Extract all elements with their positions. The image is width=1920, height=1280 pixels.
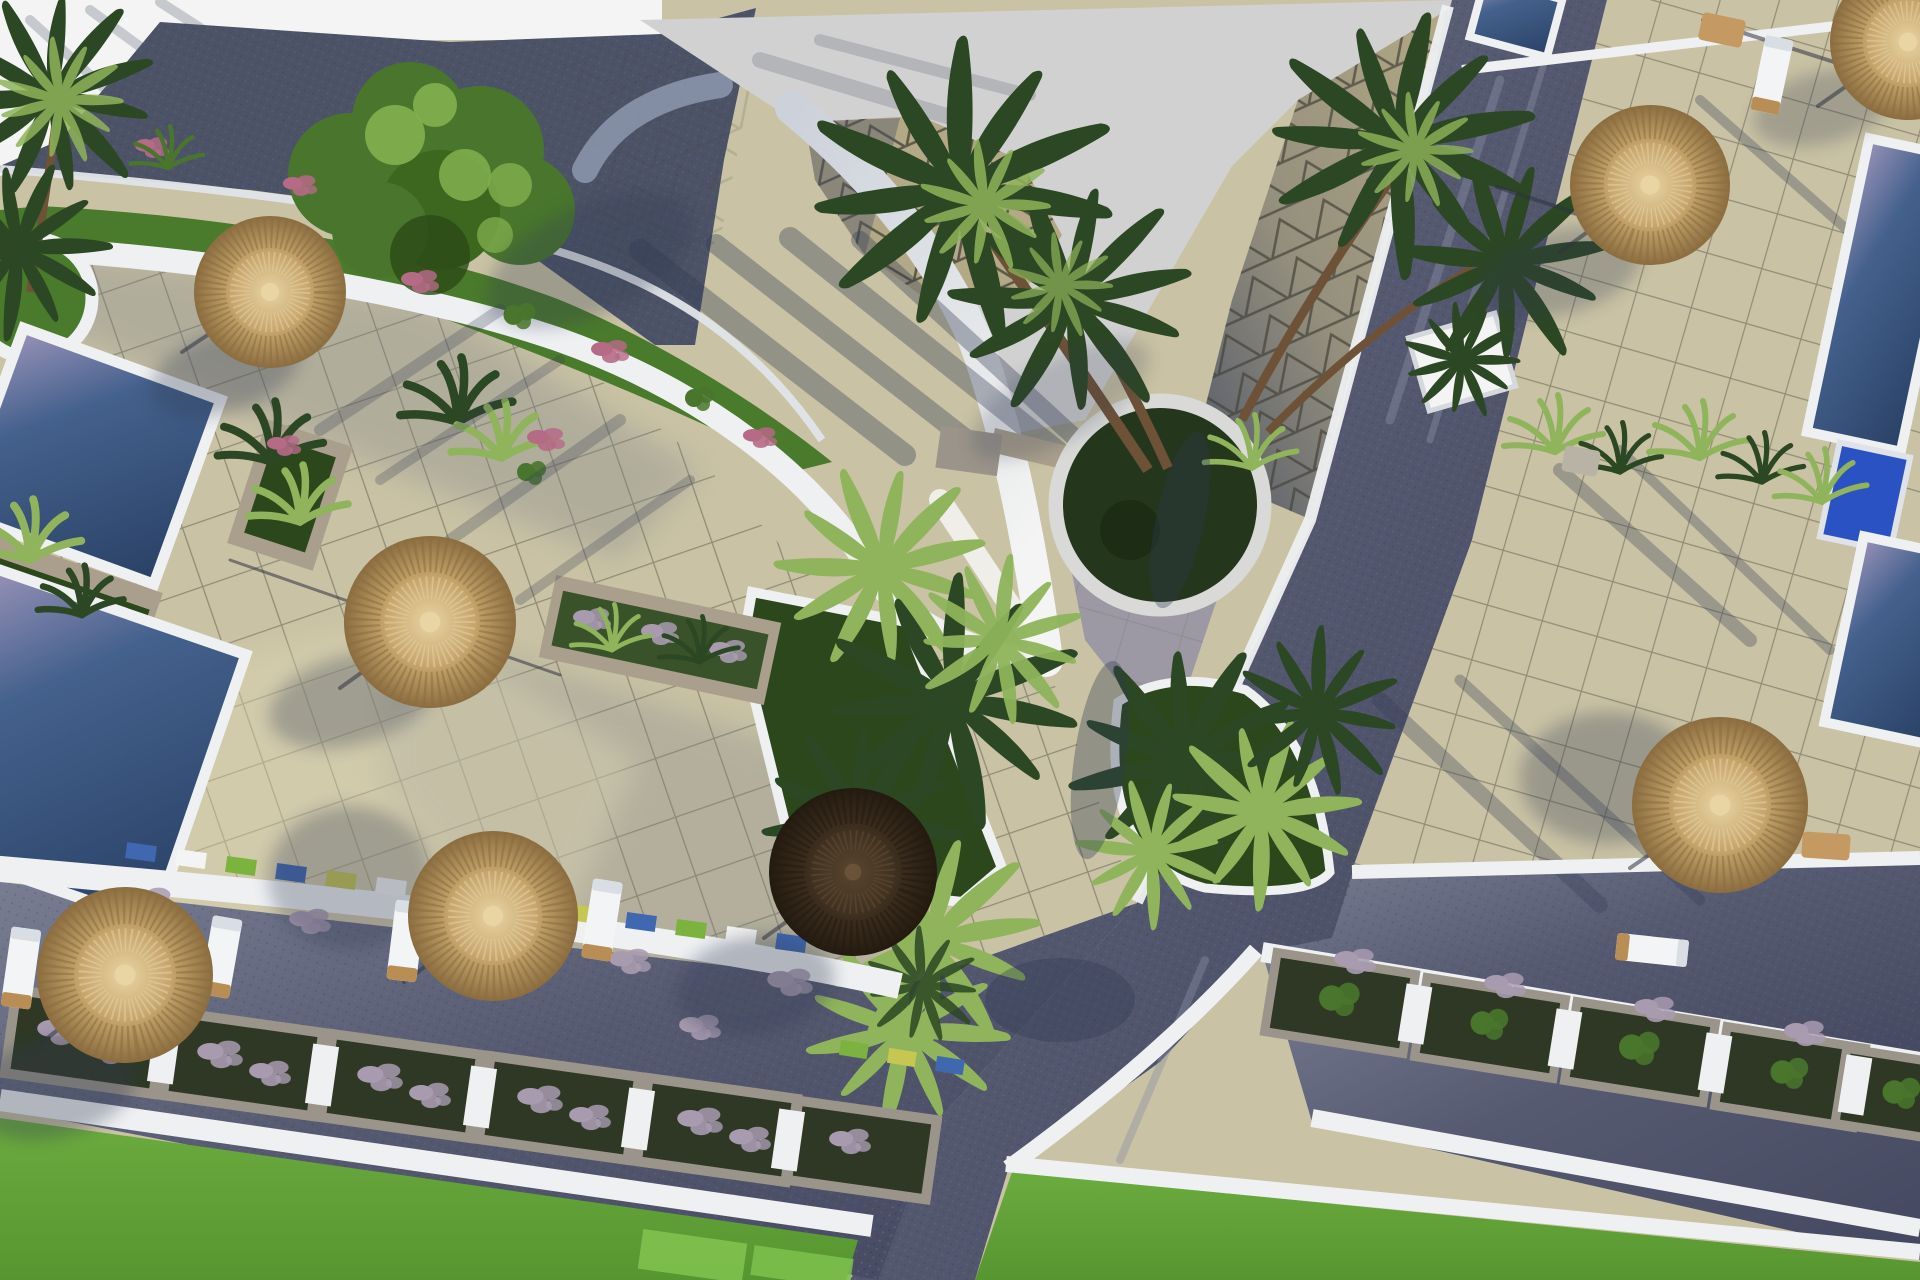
aerial-render-stage [0,0,1920,1280]
scene-svg [0,0,1920,1280]
wood-bench [1801,831,1851,860]
thatch-parasol [194,216,346,368]
